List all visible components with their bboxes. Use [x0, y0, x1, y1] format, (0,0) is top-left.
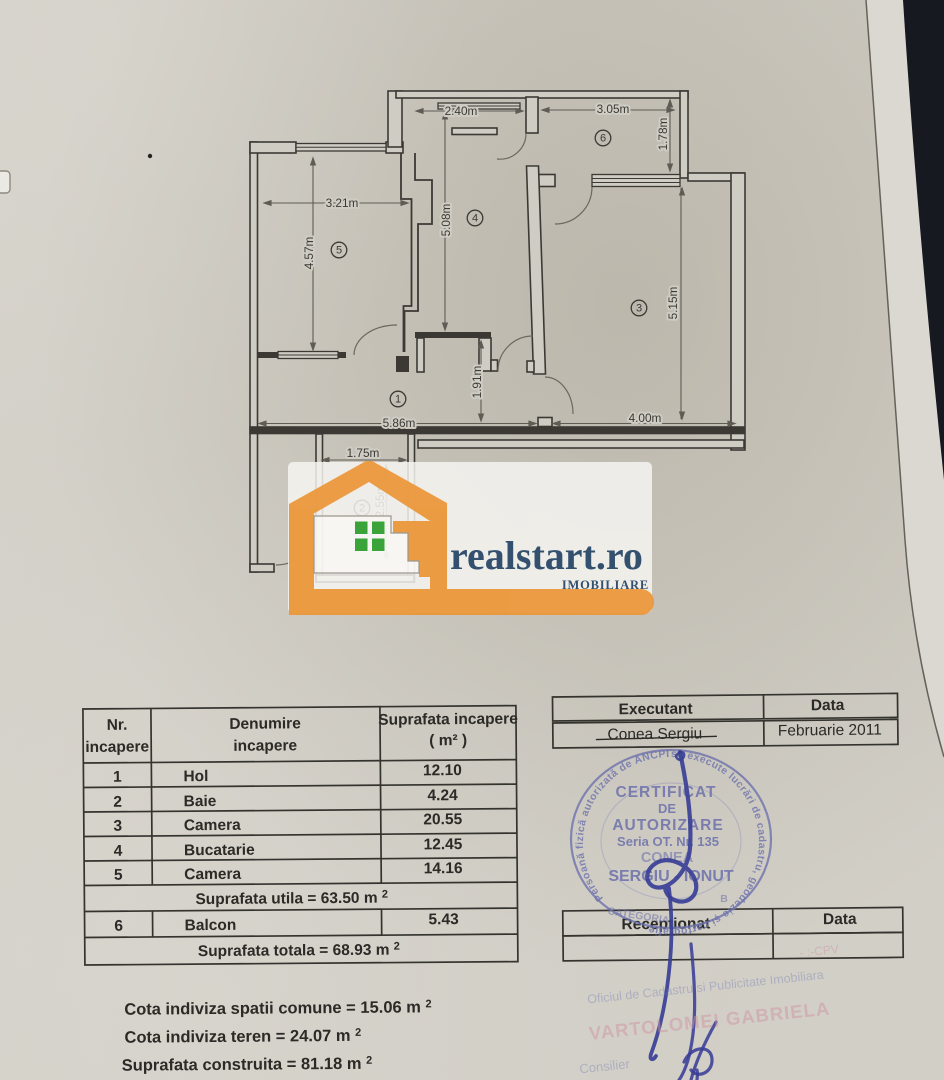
svg-text:4.00m: 4.00m: [629, 411, 662, 425]
svg-text:1.78m: 1.78m: [656, 117, 670, 150]
svg-text:5: 5: [336, 245, 342, 257]
svg-text:14.16: 14.16: [424, 860, 463, 877]
svg-text:Suprafata utila = 63.50 m 2: Suprafata utila = 63.50 m 2: [195, 889, 388, 909]
svg-text:Suprafata totala = 68.93 m 2: Suprafata totala = 68.93 m 2: [198, 941, 400, 961]
svg-text:5.15m: 5.15m: [666, 286, 680, 319]
svg-text:Februarie 2011: Februarie 2011: [778, 722, 882, 740]
svg-text:Denumire: Denumire: [229, 715, 301, 733]
svg-text:4: 4: [472, 213, 478, 225]
svg-text:3.05m: 3.05m: [597, 102, 630, 116]
svg-text:Bucatarie: Bucatarie: [184, 842, 255, 860]
svg-text:1: 1: [113, 769, 122, 786]
svg-text:3: 3: [636, 303, 642, 315]
svg-text:Suprafata incapere: Suprafata incapere: [378, 711, 518, 729]
svg-text:3.21m: 3.21m: [326, 196, 359, 210]
svg-text:6: 6: [114, 918, 123, 935]
svg-text:Suprafata construita = 81.18 m: Suprafata construita = 81.18 m 2: [122, 1055, 373, 1075]
svg-text:realstart.ro: realstart.ro: [450, 533, 643, 578]
svg-text:4: 4: [114, 843, 123, 860]
svg-text:4.57m: 4.57m: [302, 236, 316, 269]
svg-text:5.08m: 5.08m: [439, 203, 453, 236]
svg-text:12.45: 12.45: [424, 836, 463, 853]
svg-text:Nr.: Nr.: [107, 717, 128, 734]
svg-text:Data: Data: [811, 697, 845, 714]
svg-text:CERTIFICAT: CERTIFICAT: [616, 784, 717, 801]
svg-text:Camera: Camera: [184, 817, 241, 834]
svg-text:Executant: Executant: [618, 701, 692, 719]
svg-text:5: 5: [114, 867, 123, 884]
svg-text:Balcon: Balcon: [185, 917, 237, 934]
svg-text:1: 1: [395, 394, 401, 406]
svg-text:incapere: incapere: [233, 737, 297, 755]
svg-text:incapere: incapere: [85, 738, 149, 756]
svg-text:5.86m: 5.86m: [383, 416, 416, 430]
svg-text:B: B: [720, 893, 728, 905]
svg-text:Camera: Camera: [184, 866, 241, 883]
svg-text:DE: DE: [658, 801, 676, 816]
svg-text:3: 3: [113, 818, 122, 835]
svg-text:5.43: 5.43: [428, 911, 459, 928]
svg-text:20.55: 20.55: [423, 811, 462, 828]
svg-text:Hol: Hol: [183, 768, 208, 785]
svg-text:1.75m: 1.75m: [347, 446, 380, 460]
svg-text:( m² ): ( m² ): [429, 732, 467, 749]
svg-text:Conea Sergiu: Conea Sergiu: [607, 725, 702, 743]
svg-text:2.40m: 2.40m: [445, 104, 478, 118]
svg-text:Seria OT. Nr. 135: Seria OT. Nr. 135: [617, 834, 719, 849]
svg-text:Cota indiviza teren = 24.07 m: Cota indiviza teren = 24.07 m 2: [124, 1027, 361, 1047]
svg-text:IMOBILIARE: IMOBILIARE: [562, 578, 649, 592]
svg-text:Cota indiviza spatii comune =: Cota indiviza spatii comune = 15.06 m 2: [124, 998, 431, 1018]
svg-text:12.10: 12.10: [423, 762, 462, 779]
svg-text:6: 6: [600, 133, 606, 145]
svg-text:1.91m: 1.91m: [470, 365, 484, 398]
svg-text:Baie: Baie: [184, 793, 217, 810]
svg-text:AUTORIZARE: AUTORIZARE: [612, 817, 723, 834]
svg-text:4.24: 4.24: [427, 787, 458, 804]
svg-text:Data: Data: [823, 911, 857, 928]
svg-text:2: 2: [113, 794, 122, 811]
